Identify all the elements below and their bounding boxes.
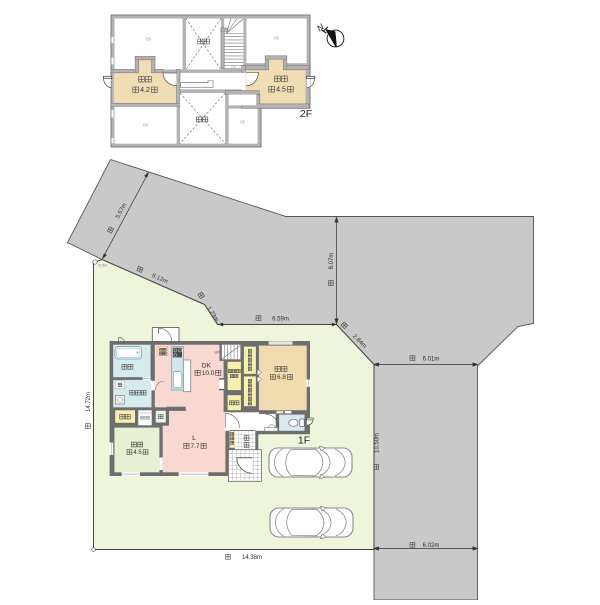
svg-text:UP: UP	[215, 350, 221, 355]
svg-text:05: 05	[240, 120, 245, 125]
svg-text:7.7: 7.7	[191, 443, 200, 450]
svg-text:05: 05	[232, 66, 236, 70]
svg-text:05: 05	[146, 37, 151, 42]
svg-text:14.72m: 14.72m	[86, 392, 92, 412]
svg-text:1F: 1F	[298, 435, 310, 447]
svg-text:6.01m: 6.01m	[423, 356, 440, 362]
svg-text:2F: 2F	[300, 108, 312, 120]
svg-text:4.5: 4.5	[133, 450, 142, 456]
svg-text:5.5m: 5.5m	[99, 263, 109, 268]
svg-text:6.59m: 6.59m	[272, 316, 289, 322]
svg-text:L: L	[192, 435, 196, 442]
svg-text:10.0: 10.0	[202, 370, 215, 377]
svg-text:DK: DK	[202, 363, 212, 370]
svg-text:05: 05	[274, 36, 279, 41]
svg-text:06: 06	[143, 123, 148, 128]
svg-text:14.38m: 14.38m	[242, 555, 262, 561]
svg-text:4.2: 4.2	[140, 87, 150, 94]
svg-text:6.02m: 6.02m	[423, 543, 440, 549]
svg-text:6.8: 6.8	[277, 374, 286, 381]
svg-text:10.50m: 10.50m	[375, 433, 381, 453]
svg-text:4.5: 4.5	[276, 87, 286, 94]
svg-text:8.07m: 8.07m	[329, 253, 335, 270]
